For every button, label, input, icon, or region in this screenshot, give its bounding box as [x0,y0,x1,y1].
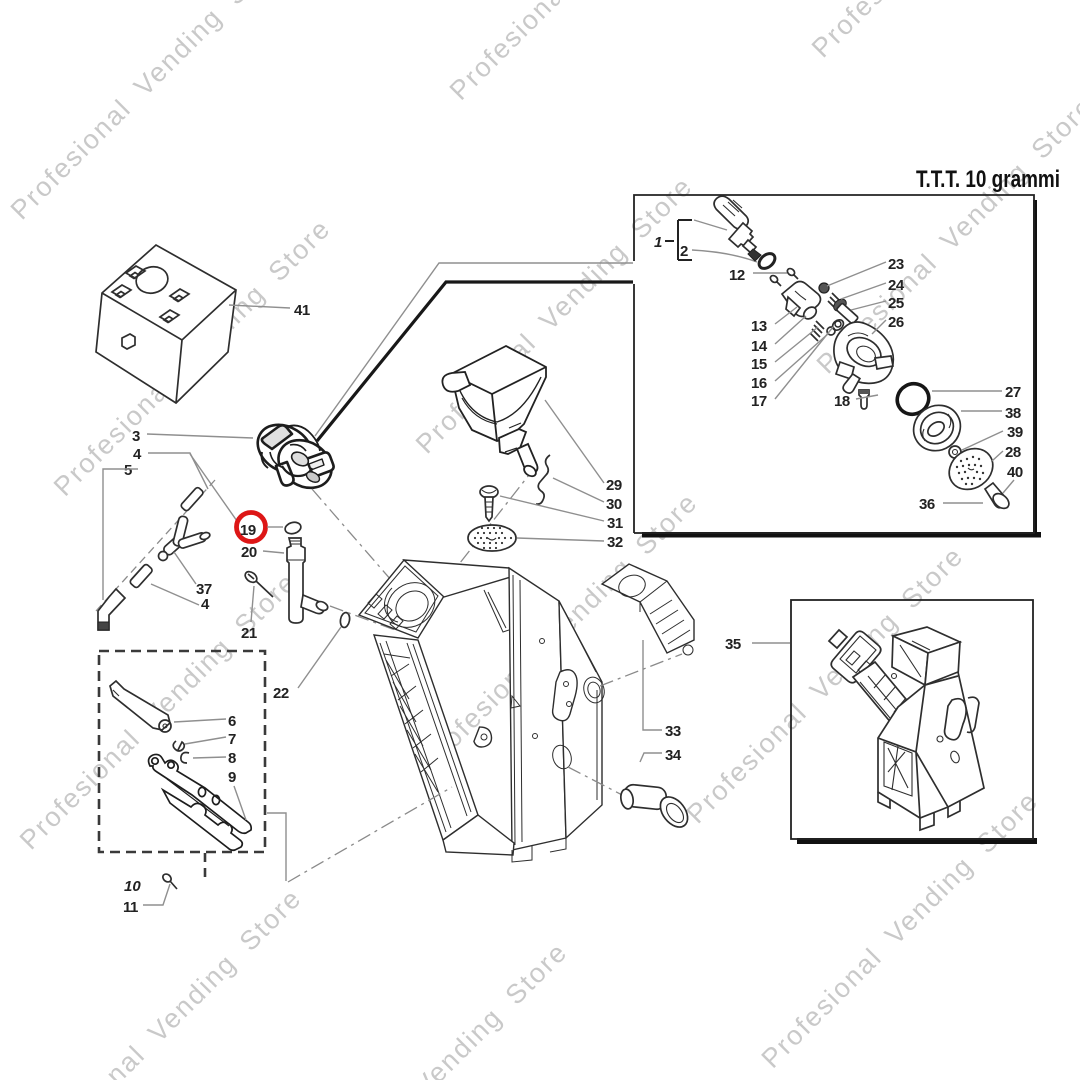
svg-text:7: 7 [228,731,236,748]
svg-text:41: 41 [294,302,310,319]
svg-text:5: 5 [124,462,132,479]
svg-text:25: 25 [888,295,904,312]
svg-text:20: 20 [241,544,257,561]
svg-text:34: 34 [665,747,682,764]
svg-text:13: 13 [751,318,767,335]
svg-text:14: 14 [751,338,768,355]
svg-text:8: 8 [228,750,236,767]
svg-text:40: 40 [1007,464,1023,481]
svg-text:T.T.T. 10 grammi: T.T.T. 10 grammi [916,166,1060,193]
svg-text:4: 4 [201,596,210,613]
svg-text:15: 15 [751,356,767,373]
svg-text:6: 6 [228,713,236,730]
svg-text:10: 10 [124,878,141,895]
svg-text:11: 11 [123,899,138,916]
svg-text:1: 1 [654,234,662,251]
svg-text:22: 22 [273,685,289,702]
svg-text:33: 33 [665,723,681,740]
svg-text:28: 28 [1005,444,1021,461]
svg-text:39: 39 [1007,424,1023,441]
svg-text:3: 3 [132,428,140,445]
svg-text:18: 18 [834,393,850,410]
svg-text:30: 30 [606,496,622,513]
svg-text:17: 17 [751,393,767,410]
svg-text:35: 35 [725,636,741,653]
svg-text:23: 23 [888,256,904,273]
svg-text:38: 38 [1005,405,1021,422]
svg-text:19: 19 [240,522,256,539]
svg-text:29: 29 [606,477,622,494]
svg-text:32: 32 [607,534,623,551]
svg-text:27: 27 [1005,384,1021,401]
svg-text:24: 24 [888,277,905,294]
svg-text:26: 26 [888,314,904,331]
svg-text:21: 21 [241,625,257,642]
svg-text:9: 9 [228,769,236,786]
svg-text:36: 36 [919,496,935,513]
svg-text:2: 2 [680,243,688,260]
svg-text:12: 12 [729,267,745,284]
svg-text:4: 4 [133,446,142,463]
svg-text:31: 31 [607,515,623,532]
svg-text:16: 16 [751,375,767,392]
